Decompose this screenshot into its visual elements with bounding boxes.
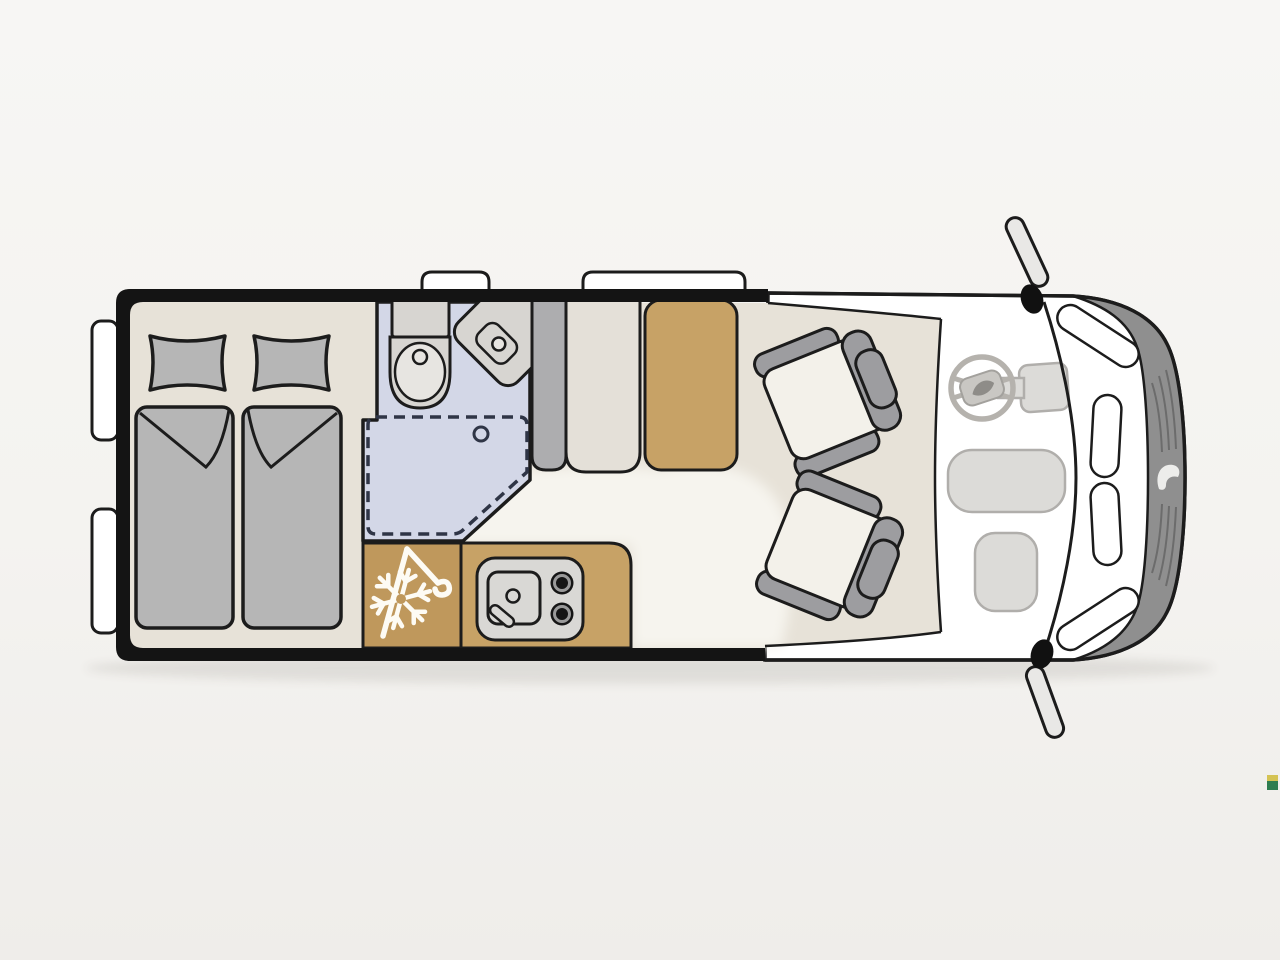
bench-backrest [532,300,566,470]
toilet [390,299,450,408]
motorhome-floorplan [0,0,1280,960]
duvet-left [136,407,233,628]
pillow [150,336,225,390]
watermark-fragment [1267,775,1278,790]
storage-flap-upper [92,321,118,440]
floorplan-image [0,0,1280,960]
toilet-cistern [392,299,449,337]
dinette-table [645,300,737,470]
hood-vent [1090,394,1122,477]
hood-vent [1090,482,1122,565]
kitchen [363,543,631,648]
side-mirror-icon [1003,215,1051,290]
storage-flap-lower [92,509,118,633]
toilet-flush-button [413,350,427,364]
duvet-right [243,407,341,628]
sink-drain [507,590,520,603]
glovebox-console [975,533,1037,611]
dinette [532,300,737,472]
pillow [254,336,329,390]
center-console [948,450,1065,512]
side-bench [566,300,640,472]
rear-storage-flaps [92,321,118,633]
